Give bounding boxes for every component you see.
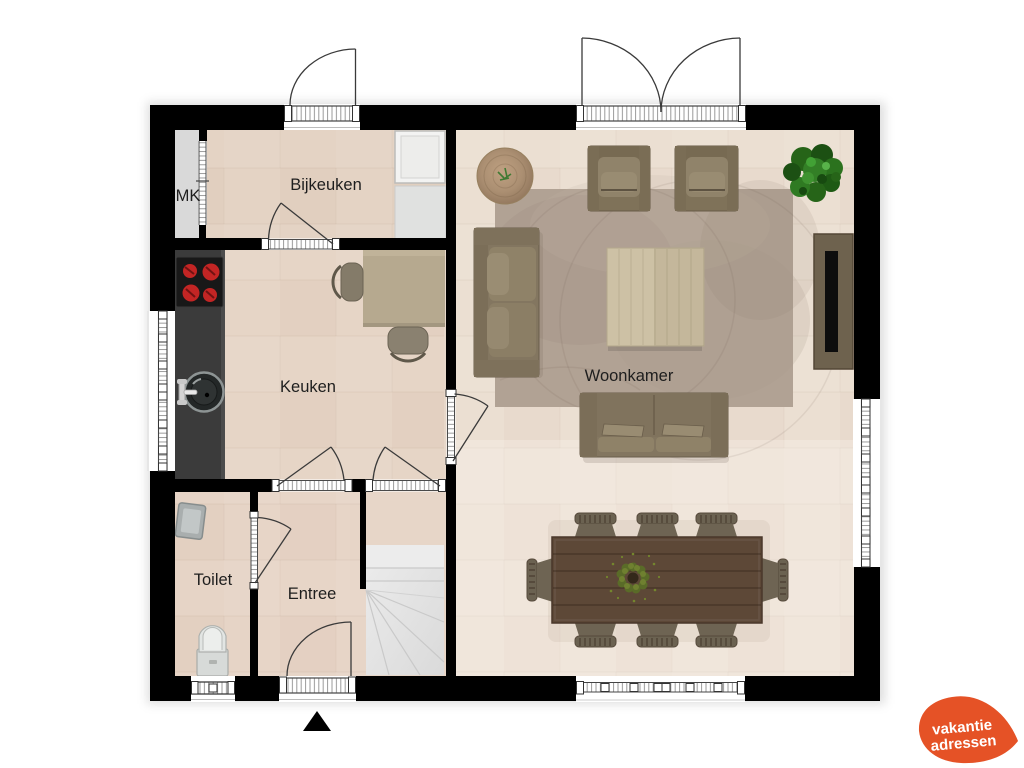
svg-text:Entree: Entree <box>288 585 337 603</box>
svg-text:Toilet: Toilet <box>194 571 233 589</box>
svg-text:Woonkamer: Woonkamer <box>585 367 674 385</box>
svg-text:Bijkeuken: Bijkeuken <box>290 176 362 194</box>
svg-text:MK: MK <box>176 187 201 205</box>
svg-text:Keuken: Keuken <box>280 378 336 396</box>
